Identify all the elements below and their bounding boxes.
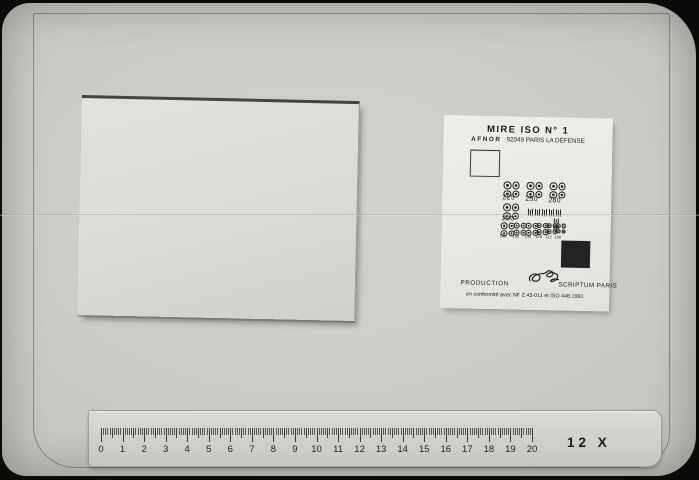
ruler-number-16: 16 bbox=[439, 444, 453, 455]
ruler-tick bbox=[118, 428, 119, 435]
ruler-tick bbox=[459, 428, 460, 435]
ruler-tick bbox=[207, 428, 208, 435]
ruler-tick bbox=[232, 428, 233, 435]
ruler-tick bbox=[135, 428, 136, 435]
ruler-tick bbox=[170, 428, 171, 435]
ruler-tick bbox=[228, 428, 229, 435]
ruler-tick bbox=[403, 428, 404, 442]
ruler-tick bbox=[392, 428, 393, 438]
pattern-bar bbox=[556, 209, 557, 216]
ruler-tick bbox=[347, 428, 348, 435]
ruler-tick bbox=[429, 428, 430, 435]
ruler-tick bbox=[508, 428, 509, 435]
pattern-dot bbox=[512, 203, 520, 211]
ruler-tick bbox=[439, 428, 440, 435]
ruler-tick bbox=[215, 428, 216, 435]
conformity-note: en conformité avec NF Z 43-011 et ISO 44… bbox=[440, 291, 609, 301]
pattern-value-250: 250 bbox=[525, 196, 538, 203]
ruler-tick bbox=[323, 428, 324, 435]
ruler-tick bbox=[286, 428, 287, 435]
ruler-tick bbox=[181, 428, 182, 435]
ruler-tick bbox=[362, 428, 363, 435]
ruler-tick bbox=[416, 428, 417, 435]
ruler-number-8: 8 bbox=[266, 444, 280, 455]
ruler-tick bbox=[105, 428, 106, 435]
ruler-tick bbox=[243, 428, 244, 435]
fine-bar-group bbox=[528, 209, 533, 216]
ruler-tick bbox=[379, 428, 380, 435]
ruler-tick bbox=[301, 428, 302, 435]
pattern-value-180: 180 bbox=[499, 233, 506, 238]
pattern-bar bbox=[551, 210, 552, 216]
ruler-tick bbox=[217, 428, 218, 435]
ruler-tick bbox=[411, 428, 412, 435]
ruler-tick bbox=[239, 428, 240, 435]
ruler-tick bbox=[245, 428, 246, 435]
ruler-tick bbox=[375, 428, 376, 435]
ruler-number-6: 6 bbox=[223, 444, 237, 455]
ruler-tick bbox=[485, 428, 486, 435]
ruler-tick bbox=[174, 428, 175, 435]
producer-label: SCRIPTUM PARIS bbox=[558, 281, 617, 289]
ruler-tick bbox=[200, 428, 201, 435]
ruler-tick bbox=[345, 428, 346, 435]
ruler-tick bbox=[213, 428, 214, 435]
ruler-tick bbox=[513, 428, 514, 435]
ruler-tick bbox=[370, 428, 371, 438]
ruler-tick bbox=[498, 428, 499, 435]
iso-test-chart-card: MIRE ISO N° 1 AFNOR92049 PARIS LA DÉFENS… bbox=[440, 115, 613, 311]
ruler-number-2: 2 bbox=[137, 444, 151, 455]
ruler-tick bbox=[310, 428, 311, 435]
pattern-dot bbox=[547, 223, 552, 228]
afnor-address: 92049 PARIS LA DÉFENSE bbox=[506, 136, 584, 145]
ruler-tick bbox=[437, 428, 438, 435]
pattern-value-280: 280 bbox=[548, 197, 561, 204]
ruler-tick bbox=[151, 428, 152, 435]
ruler-tick bbox=[510, 428, 511, 442]
ruler-tick bbox=[133, 428, 134, 438]
ruler-tick bbox=[176, 428, 177, 438]
ruler-tick bbox=[457, 428, 458, 438]
pattern-bar bbox=[530, 210, 531, 216]
ruler-tick bbox=[394, 428, 395, 435]
ruler-tick bbox=[142, 428, 143, 435]
pattern-dot bbox=[503, 181, 511, 189]
ruler-tick bbox=[273, 428, 274, 442]
pattern-dot bbox=[512, 181, 520, 189]
ruler-tick bbox=[116, 428, 117, 435]
ruler-number-0: 0 bbox=[94, 444, 108, 455]
ruler-tick bbox=[368, 428, 369, 435]
ruler-tick bbox=[110, 428, 111, 435]
centimeter-ruler: 01234567891011121314151617181920 12 X bbox=[88, 410, 662, 467]
ruler-tick bbox=[461, 428, 462, 435]
ruler-number-11: 11 bbox=[331, 444, 345, 455]
ruler-tick bbox=[489, 428, 490, 442]
ruler-tick bbox=[314, 428, 315, 435]
ruler-tick bbox=[260, 428, 261, 435]
ruler-tick bbox=[202, 428, 203, 435]
pattern-bar bbox=[539, 209, 540, 216]
ruler-tick bbox=[357, 428, 358, 435]
ruler-tick bbox=[269, 428, 270, 435]
ruler-number-17: 17 bbox=[460, 444, 474, 455]
ruler-tick bbox=[444, 428, 445, 435]
ruler-tick bbox=[120, 428, 121, 435]
ruler-tick bbox=[250, 428, 251, 435]
ruler-tick bbox=[528, 428, 529, 435]
ruler-tick bbox=[325, 428, 326, 435]
ruler-tick bbox=[187, 428, 188, 442]
ruler-tick bbox=[413, 428, 414, 438]
pattern-value-160: 160 bbox=[512, 233, 519, 238]
ruler-tick bbox=[226, 428, 227, 435]
ruler-number-15: 15 bbox=[417, 444, 431, 455]
ruler-tick bbox=[131, 428, 132, 435]
ruler-tick bbox=[401, 428, 402, 435]
pattern-bar bbox=[537, 210, 538, 216]
ruler-tick bbox=[267, 428, 268, 435]
ruler-tick bbox=[502, 428, 503, 435]
ruler-tick bbox=[211, 428, 212, 435]
ruler-tick bbox=[493, 428, 494, 435]
microfilm-photo-frame: MIRE ISO N° 1 AFNOR92049 PARIS LA DÉFENS… bbox=[0, 0, 699, 480]
scriptum-logo-icon bbox=[526, 267, 560, 288]
ruler-tick bbox=[515, 428, 516, 435]
white-calibration-square bbox=[470, 150, 501, 178]
ruler-tick bbox=[179, 428, 180, 435]
ruler-tick bbox=[308, 428, 309, 435]
ruler-tick bbox=[138, 428, 139, 435]
ruler-tick bbox=[183, 428, 184, 435]
ruler-tick bbox=[306, 428, 307, 438]
ruler-tick bbox=[390, 428, 391, 435]
ruler-tick bbox=[353, 428, 354, 435]
ruler-tick bbox=[351, 428, 352, 435]
ruler-tick bbox=[198, 428, 199, 438]
pattern-dot bbox=[514, 222, 520, 228]
ruler-tick bbox=[532, 428, 533, 442]
ruler-tick bbox=[396, 428, 397, 435]
pattern-bar bbox=[544, 210, 545, 216]
ruler-tick bbox=[472, 428, 473, 435]
ruler-tick bbox=[409, 428, 410, 435]
ruler-tick bbox=[426, 428, 427, 435]
pattern-dot bbox=[561, 223, 566, 228]
ruler-number-5: 5 bbox=[202, 444, 216, 455]
ruler-tick bbox=[148, 428, 149, 435]
ruler-tick bbox=[405, 428, 406, 435]
ruler-tick bbox=[431, 428, 432, 435]
ruler-tick bbox=[256, 428, 257, 435]
ruler-number-10: 10 bbox=[310, 444, 324, 455]
ruler-tick bbox=[248, 428, 249, 435]
ruler-tick bbox=[336, 428, 337, 435]
ruler-tick bbox=[291, 428, 292, 435]
ruler-tick bbox=[355, 428, 356, 435]
pattern-value-112: 112 bbox=[545, 234, 551, 239]
ruler-tick bbox=[530, 428, 531, 435]
ruler-tick bbox=[500, 428, 501, 438]
ruler-tick bbox=[349, 428, 350, 438]
pattern-dot bbox=[503, 203, 511, 211]
ruler-tick bbox=[125, 428, 126, 435]
ruler-tick bbox=[526, 428, 527, 435]
ruler-tick bbox=[465, 428, 466, 435]
ruler-tick bbox=[265, 428, 266, 435]
ruler-tick bbox=[209, 428, 210, 442]
ruler-tick bbox=[164, 428, 165, 435]
ruler-tick bbox=[295, 428, 296, 442]
ruler-tick bbox=[342, 428, 343, 435]
ruler-tick bbox=[166, 428, 167, 442]
ruler-tick bbox=[288, 428, 289, 435]
ruler-number-13: 13 bbox=[374, 444, 388, 455]
ruler-tick bbox=[263, 428, 264, 438]
ruler-tick bbox=[463, 428, 464, 435]
ruler-tick bbox=[418, 428, 419, 435]
ruler-tick bbox=[230, 428, 231, 442]
ruler-tick bbox=[364, 428, 365, 435]
ruler-tick bbox=[452, 428, 453, 435]
ruler-tick bbox=[254, 428, 255, 435]
ruler-tick bbox=[487, 428, 488, 435]
ruler-tick bbox=[172, 428, 173, 435]
pattern-bar bbox=[535, 209, 536, 216]
pattern-bar bbox=[546, 209, 547, 216]
ruler-tick bbox=[258, 428, 259, 435]
production-label: PRODUCTION bbox=[460, 279, 508, 287]
ruler-tick bbox=[185, 428, 186, 435]
ruler-tick bbox=[441, 428, 442, 435]
ruler-tick bbox=[467, 428, 468, 442]
ruler-tick bbox=[383, 428, 384, 435]
ruler-tick bbox=[220, 428, 221, 438]
ruler-tick bbox=[317, 428, 318, 442]
pattern-value-100: 100 bbox=[554, 234, 561, 239]
pattern-value-140: 140 bbox=[524, 234, 531, 239]
ruler-tick bbox=[480, 428, 481, 435]
ruler-tick bbox=[192, 428, 193, 435]
ruler-tick bbox=[114, 428, 115, 435]
ruler-tick bbox=[373, 428, 374, 435]
ruler-tick bbox=[407, 428, 408, 435]
pattern-dot bbox=[526, 223, 532, 229]
pattern-bar bbox=[532, 209, 533, 216]
afnor-label: AFNOR bbox=[471, 136, 502, 144]
ruler-tick bbox=[495, 428, 496, 435]
ruler-tick bbox=[144, 428, 145, 442]
pattern-value-225: 225 bbox=[502, 194, 515, 201]
ruler-tick bbox=[424, 428, 425, 442]
ruler-tick bbox=[422, 428, 423, 435]
ruler-tick bbox=[112, 428, 113, 438]
ruler-tick bbox=[491, 428, 492, 435]
ruler-tick bbox=[293, 428, 294, 435]
ruler-tick bbox=[482, 428, 483, 435]
pattern-cluster-280 bbox=[549, 182, 565, 198]
ruler-tick bbox=[388, 428, 389, 435]
pattern-dot bbox=[556, 223, 561, 228]
ruler-tick bbox=[517, 428, 518, 435]
ruler-tick bbox=[155, 428, 156, 438]
ruler-tick bbox=[146, 428, 147, 435]
fine-bar-group bbox=[535, 209, 540, 216]
ruler-tick bbox=[159, 428, 160, 435]
ruler-tick bbox=[450, 428, 451, 435]
ruler-tick bbox=[446, 428, 447, 442]
ruler-number-18: 18 bbox=[482, 444, 496, 455]
ruler-tick bbox=[297, 428, 298, 435]
ruler-tick bbox=[237, 428, 238, 435]
ruler-tick bbox=[340, 428, 341, 435]
ruler-number-20: 20 bbox=[525, 444, 539, 455]
pattern-dot bbox=[501, 222, 508, 229]
pattern-value-125: 125 bbox=[535, 234, 542, 239]
ruler-tick bbox=[433, 428, 434, 435]
magnification-label: 12 X bbox=[567, 435, 611, 450]
pattern-bar bbox=[528, 209, 529, 216]
ruler-number-19: 19 bbox=[503, 444, 517, 455]
ruler-tick bbox=[304, 428, 305, 435]
ruler-tick bbox=[157, 428, 158, 435]
ruler-tick bbox=[470, 428, 471, 435]
ruler-tick bbox=[398, 428, 399, 435]
ruler-number-3: 3 bbox=[159, 444, 173, 455]
ruler-tick bbox=[140, 428, 141, 435]
pattern-bar bbox=[549, 209, 550, 216]
black-calibration-square bbox=[561, 240, 591, 268]
ruler-tick bbox=[334, 428, 335, 435]
pattern-dot bbox=[537, 223, 543, 229]
ruler-tick bbox=[312, 428, 313, 435]
ruler-tick bbox=[366, 428, 367, 435]
ruler-tick bbox=[222, 428, 223, 435]
ruler-tick bbox=[101, 428, 102, 442]
pattern-dot bbox=[549, 182, 557, 190]
ruler-tick bbox=[103, 428, 104, 435]
ruler-tick bbox=[204, 428, 205, 435]
ruler-tick bbox=[107, 428, 108, 435]
ruler-tick bbox=[435, 428, 436, 438]
ruler-tick bbox=[478, 428, 479, 438]
ruler-tick bbox=[327, 428, 328, 438]
pattern-dot bbox=[535, 182, 543, 190]
pattern-bar bbox=[553, 209, 554, 216]
ruler-number-1: 1 bbox=[116, 444, 130, 455]
ruler-tick bbox=[385, 428, 386, 435]
fine-bar-group bbox=[542, 209, 547, 216]
pattern-dot bbox=[561, 229, 566, 234]
ruler-tick bbox=[271, 428, 272, 435]
ruler-tick bbox=[276, 428, 277, 435]
fine-bar-group bbox=[549, 209, 554, 216]
ruler-tick bbox=[189, 428, 190, 435]
ruler-tick bbox=[161, 428, 162, 435]
ruler-number-12: 12 bbox=[353, 444, 367, 455]
ruler-tick bbox=[280, 428, 281, 435]
ruler-tick bbox=[329, 428, 330, 435]
pattern-bar bbox=[560, 209, 561, 216]
ruler-tick bbox=[338, 428, 339, 442]
ruler-tick bbox=[504, 428, 505, 435]
ruler-number-9: 9 bbox=[288, 444, 302, 455]
ruler-tick bbox=[360, 428, 361, 442]
ruler-tick bbox=[319, 428, 320, 435]
ruler-tick bbox=[377, 428, 378, 435]
ruler-number-14: 14 bbox=[396, 444, 410, 455]
ruler-tick bbox=[129, 428, 130, 435]
ruler-tick bbox=[153, 428, 154, 435]
ruler-tick bbox=[523, 428, 524, 435]
ruler-number-7: 7 bbox=[245, 444, 259, 455]
ruler-tick bbox=[282, 428, 283, 435]
ruler-tick bbox=[168, 428, 169, 435]
ruler-tick bbox=[284, 428, 285, 438]
ruler-tick bbox=[235, 428, 236, 435]
ruler-tick bbox=[252, 428, 253, 442]
ruler-tick bbox=[454, 428, 455, 435]
pattern-dot bbox=[526, 182, 534, 190]
ruler-tick bbox=[224, 428, 225, 435]
ruler-tick bbox=[506, 428, 507, 435]
ruler-tick bbox=[381, 428, 382, 442]
fine-bar-group bbox=[556, 209, 561, 216]
ruler-tick bbox=[476, 428, 477, 435]
pattern-bar bbox=[542, 209, 543, 216]
ruler-tick bbox=[196, 428, 197, 435]
ruler-number-4: 4 bbox=[180, 444, 194, 455]
ruler-tick bbox=[448, 428, 449, 435]
ruler-tick bbox=[241, 428, 242, 438]
ruler-tick bbox=[278, 428, 279, 435]
ruler-tick bbox=[194, 428, 195, 435]
ruler-tick bbox=[420, 428, 421, 435]
ruler-tick bbox=[123, 428, 124, 442]
pattern-dot bbox=[558, 182, 566, 190]
blank-reference-card bbox=[77, 95, 360, 321]
pattern-dot bbox=[556, 229, 561, 234]
pattern-bar bbox=[558, 210, 559, 216]
ruler-tick bbox=[127, 428, 128, 435]
ruler-tick bbox=[521, 428, 522, 438]
ruler-tick bbox=[299, 428, 300, 435]
pattern-cluster-100 bbox=[556, 223, 567, 234]
ruler-tick bbox=[332, 428, 333, 435]
ruler-tick bbox=[474, 428, 475, 435]
ruler-tick bbox=[519, 428, 520, 435]
ruler-tick bbox=[321, 428, 322, 435]
